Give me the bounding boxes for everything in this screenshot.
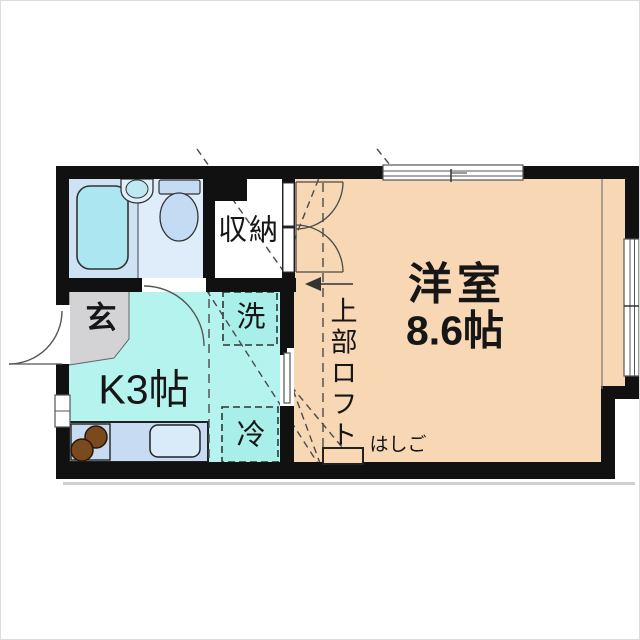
entrance-label: 玄: [86, 303, 117, 334]
wall-right-lower: [601, 391, 615, 479]
loft-label: 上部ロフト: [328, 297, 355, 452]
wall-closet-notch: [215, 179, 247, 201]
kitchen-label: K3帖: [98, 370, 189, 411]
toilet-tank: [159, 180, 200, 194]
bathroom-door-gap: [142, 278, 206, 292]
entrance-door-arc: [9, 311, 62, 364]
wall-kitchen-room-upper: [280, 281, 294, 348]
stove-burner-2: [71, 439, 93, 461]
kitchen-sink: [150, 425, 200, 457]
western-room-size-label: 8.6帖: [406, 311, 504, 352]
wall-bath-closet: [203, 166, 215, 292]
washer-label: 洗: [236, 304, 265, 333]
floor-plan-page: 収納 洋室 8.6帖 玄 K3帖 洗 冷 上部ロフト はしご: [0, 0, 640, 640]
kitchen-room-door-leaf: [284, 353, 290, 403]
wall-top: [56, 166, 639, 179]
plan-shadow-line: [63, 482, 635, 485]
refrigerator-label: 冷: [236, 422, 265, 451]
closet-label: 収納: [218, 217, 280, 246]
right-window: [624, 239, 639, 376]
ladder-label: はしご: [369, 436, 426, 455]
western-room-label: 洋室: [408, 263, 506, 307]
closet-door-strip-2: [283, 228, 294, 272]
closet-door-strip-1: [283, 183, 294, 226]
toilet-bowl: [160, 193, 198, 241]
wall-kitchen-room-lower: [280, 406, 294, 462]
bathtub: [77, 186, 128, 269]
washbasin-bowl: [126, 180, 148, 198]
